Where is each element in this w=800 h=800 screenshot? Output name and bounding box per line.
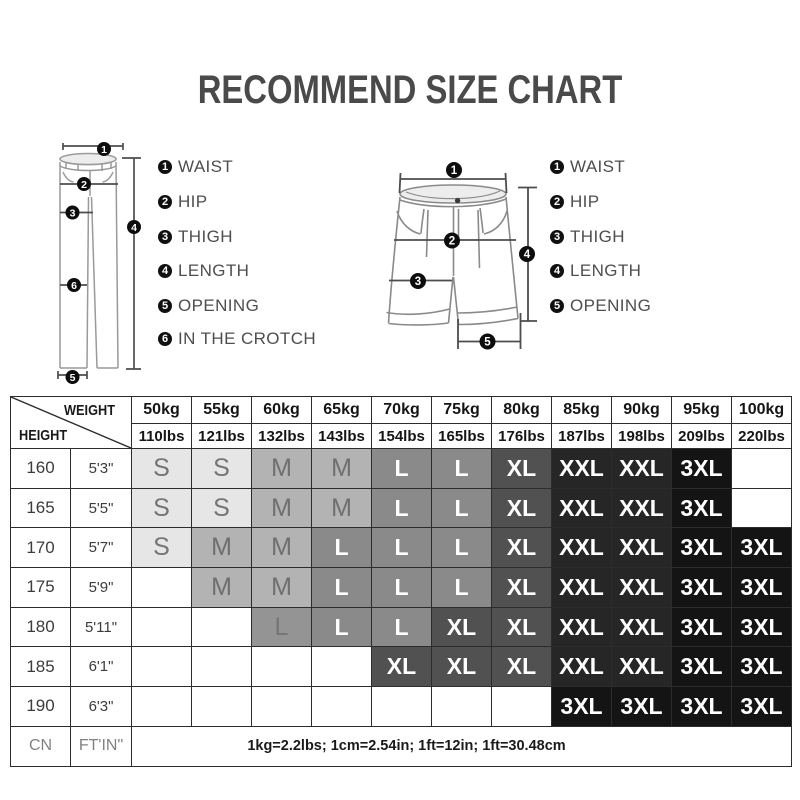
svg-text:1: 1 <box>451 165 458 177</box>
svg-text:5: 5 <box>70 372 76 384</box>
svg-text:6: 6 <box>71 280 77 292</box>
svg-text:4: 4 <box>524 249 531 261</box>
svg-text:5: 5 <box>484 337 491 349</box>
svg-text:4: 4 <box>131 222 137 234</box>
svg-text:3: 3 <box>70 207 76 219</box>
svg-text:2: 2 <box>81 179 87 191</box>
svg-text:3: 3 <box>415 276 421 288</box>
svg-text:1: 1 <box>101 144 107 156</box>
svg-text:2: 2 <box>449 236 455 248</box>
